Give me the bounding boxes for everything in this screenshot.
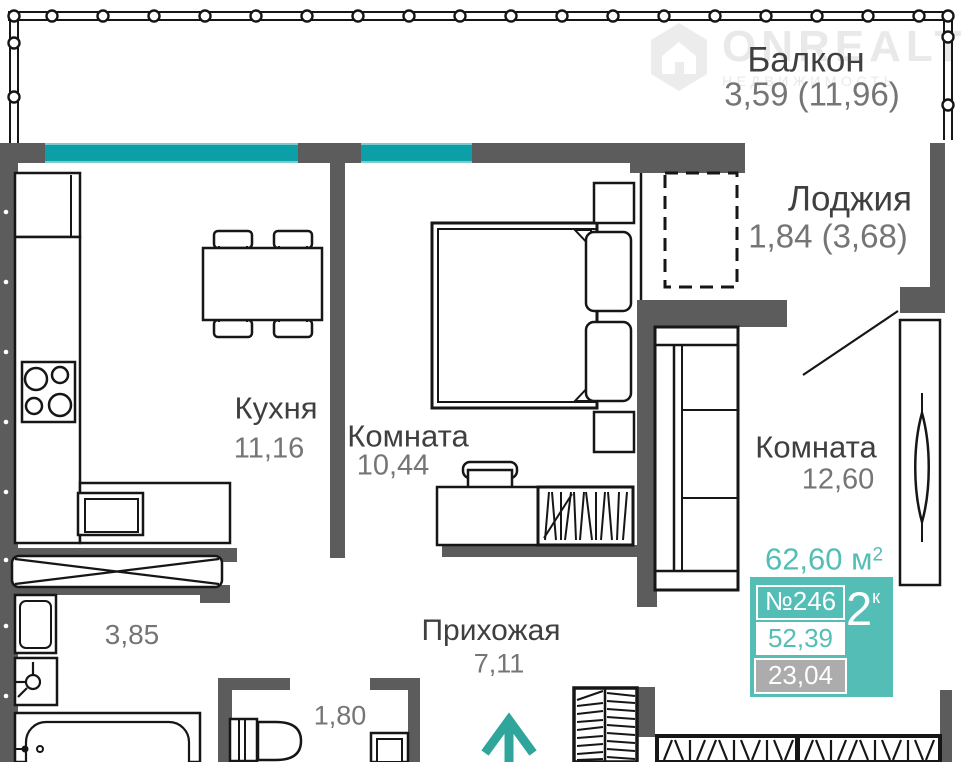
hatched-wardrobe-symbol: [538, 487, 633, 545]
toilet-symbol: [230, 719, 301, 761]
room-label-loggia: Лоджия: [788, 182, 912, 217]
room-label-bedroom: Комната: [347, 421, 468, 452]
rooms-count-value: 2: [846, 585, 872, 632]
wall-anchor-dots: [4, 210, 9, 699]
rooms-count-suffix: к: [872, 588, 880, 606]
room-area-loggia: 1,84 (3,68): [748, 220, 908, 253]
total-area-sup: 2: [872, 544, 883, 565]
room-area-wc: 1,80: [314, 703, 367, 730]
bed-symbol: [432, 183, 634, 452]
entrance-arrow-icon: [485, 720, 533, 762]
desk-symbol: [437, 462, 538, 545]
stairs-symbol: [574, 688, 637, 762]
kitchen-sink-symbol: [78, 493, 143, 535]
washbasin-symbol: [15, 658, 57, 705]
mirror-wardrobe-symbol: [900, 320, 940, 585]
room-area-hallway: 7,11: [474, 651, 525, 678]
room-label-living: Комната: [755, 432, 876, 463]
room-area-bathroom: 3,85: [105, 621, 160, 649]
total-area-value: 62,60: [765, 542, 843, 577]
total-area-unit: м: [843, 542, 873, 577]
sofa-symbol: [655, 327, 738, 590]
door-swing-line: [803, 311, 898, 375]
living-space-value: 52,39: [756, 622, 845, 655]
stove-symbol: [22, 362, 75, 422]
apartment-number: №246: [756, 585, 845, 620]
room-label-balcony: Балкон: [747, 43, 864, 78]
crossed-wardrobe-symbol: [12, 556, 222, 587]
kitchen-counter-symbol: [15, 173, 230, 543]
room-area-kitchen: 11,16: [234, 435, 304, 464]
floorplan-canvas: ONREALT НЕДВИЖИМОСТЬ: [0, 0, 961, 762]
room-area-balcony: 3,59 (11,96): [724, 78, 900, 111]
dining-table-symbol: [203, 231, 322, 337]
rooms-count: 2 к: [846, 585, 880, 632]
secondary-space-value: 23,04: [754, 658, 847, 694]
room-label-kitchen: Кухня: [235, 393, 318, 424]
room-label-hallway: Прихожая: [421, 616, 560, 646]
room-area-bedroom: 10,44: [357, 452, 430, 481]
dashed-cabinet-outline: [665, 173, 737, 287]
wc-fixture-symbol: [371, 733, 408, 762]
bathtub-symbol: [15, 713, 200, 762]
room-area-living: 12,60: [802, 466, 875, 495]
hallway-wardrobe-symbol: [657, 736, 940, 762]
apartment-info-badge: №246 2 к 52,39 23,04: [750, 577, 893, 697]
total-area-label: 62,60 м2: [765, 543, 883, 574]
washing-machine-symbol: [15, 595, 56, 653]
